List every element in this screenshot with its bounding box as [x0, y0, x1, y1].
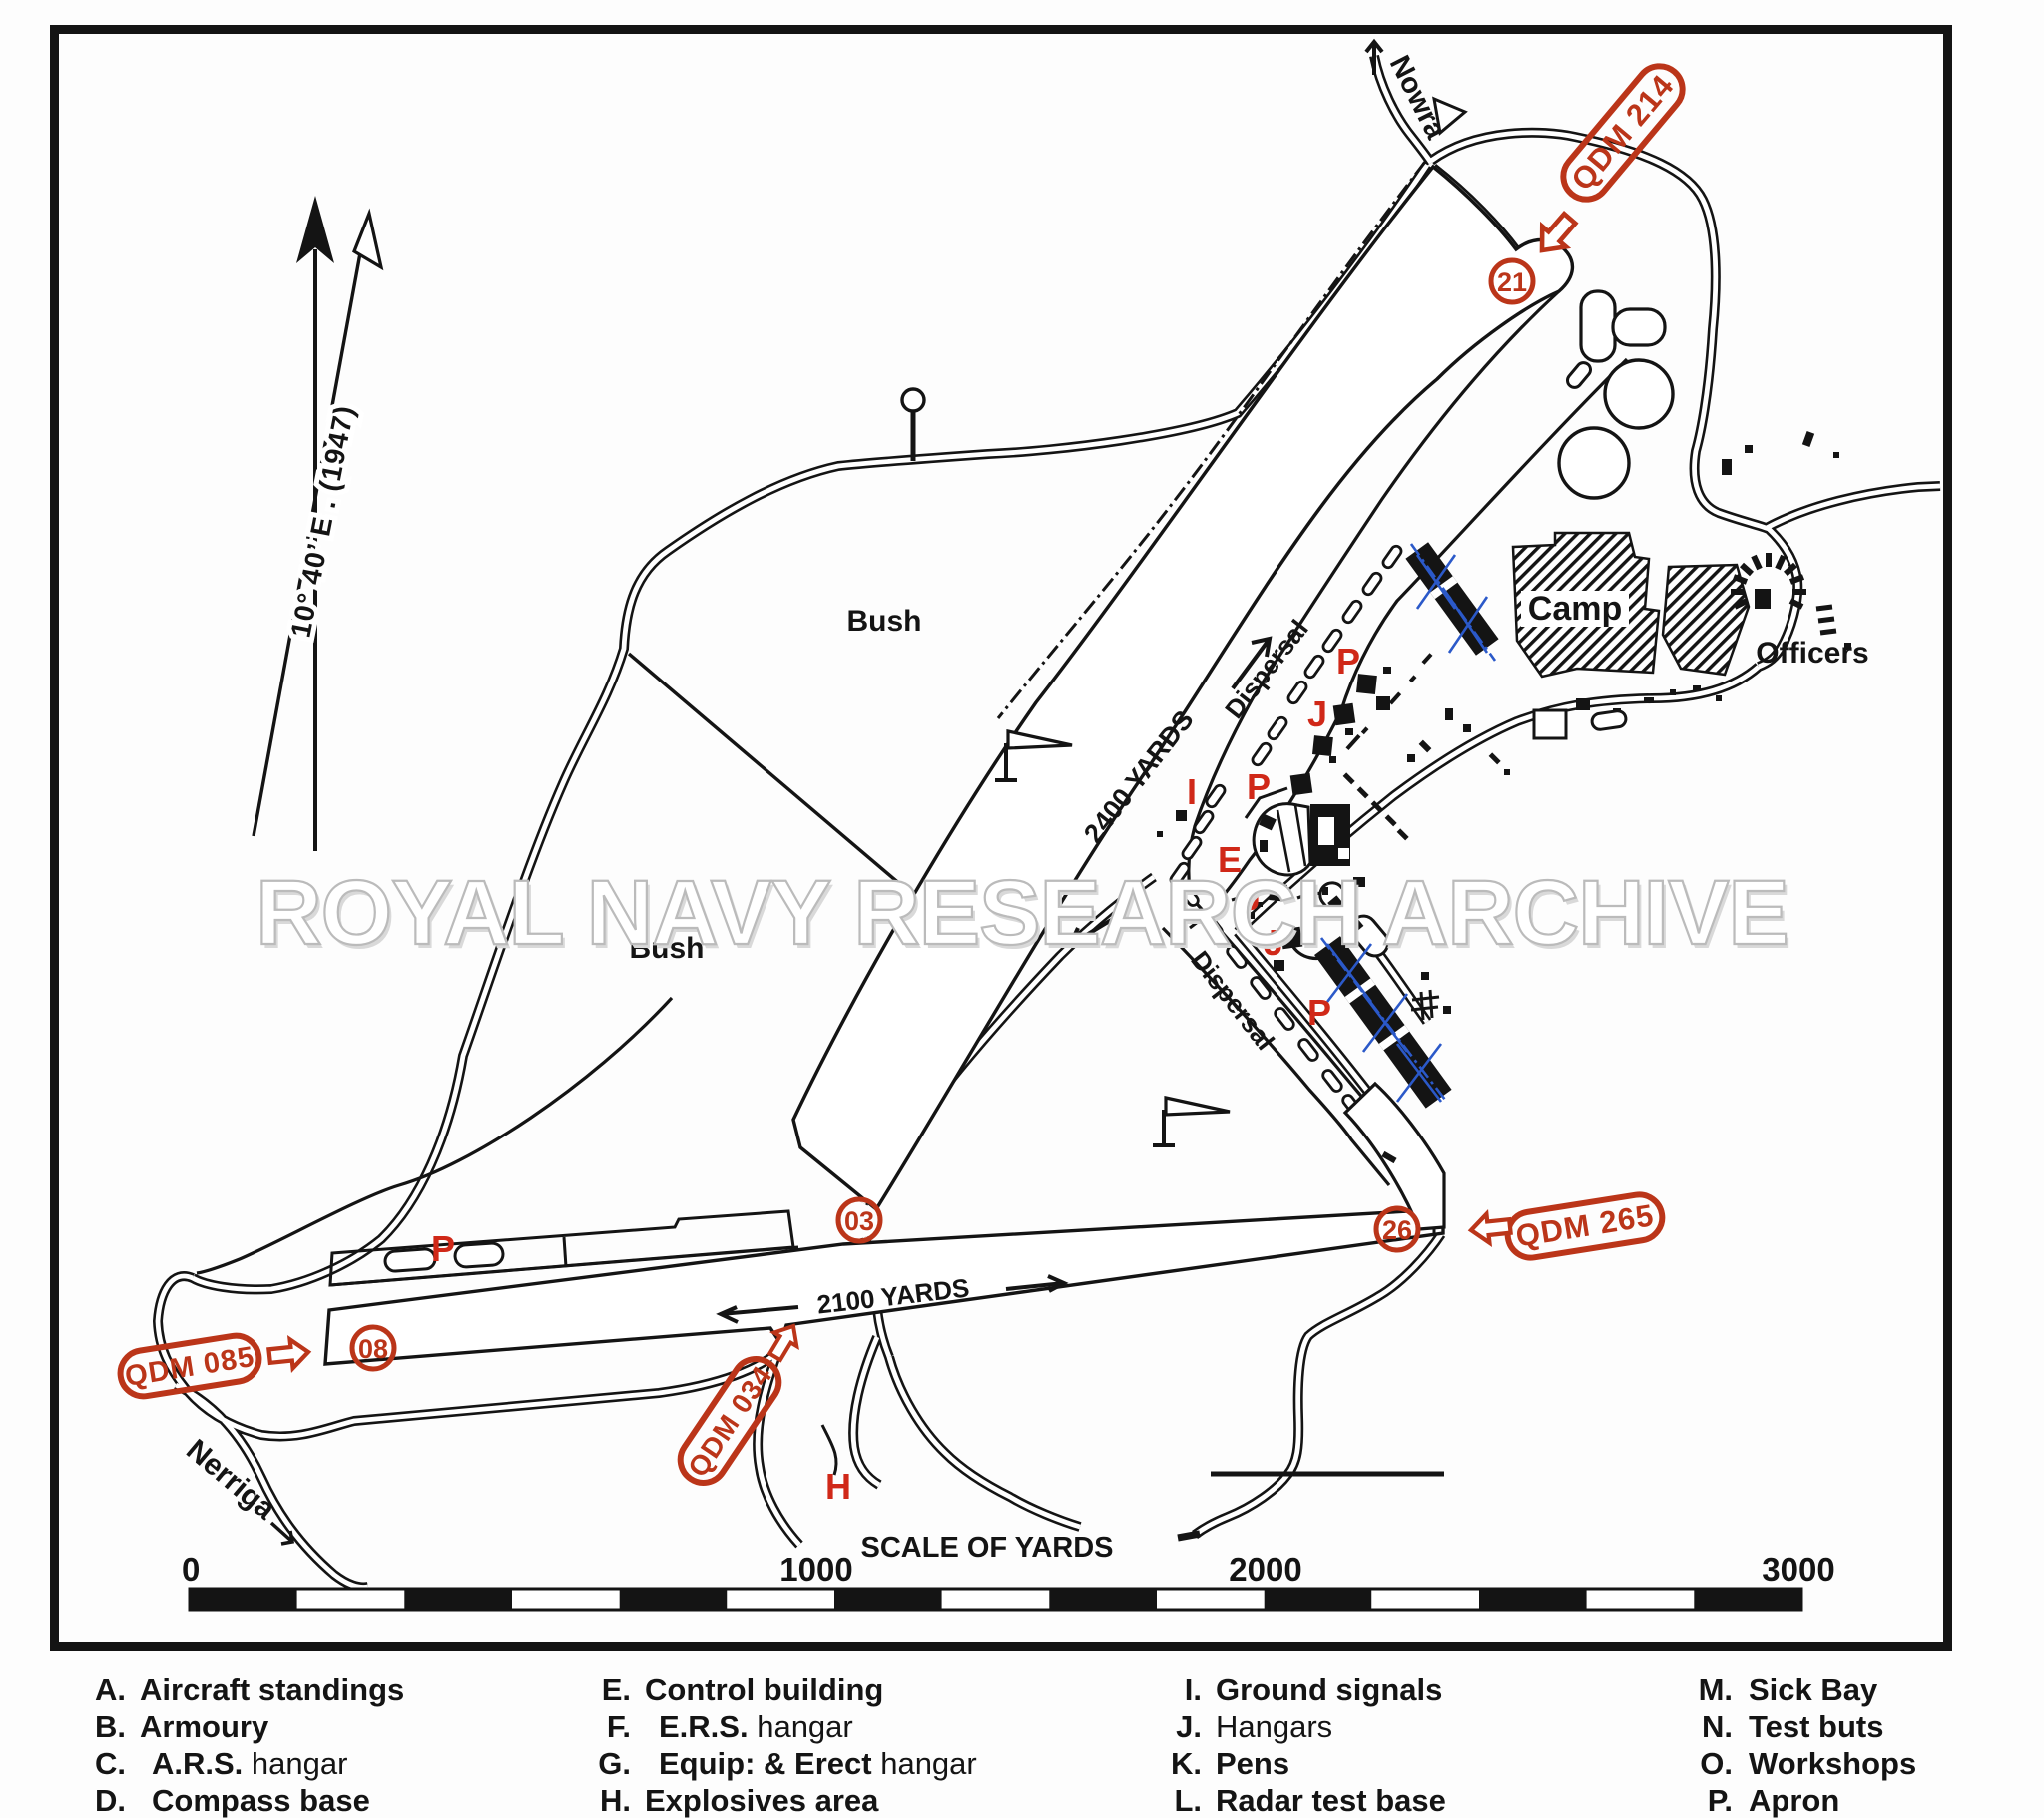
svg-text:3000: 3000 [1762, 1551, 1834, 1588]
svg-text:03: 03 [844, 1206, 874, 1236]
svg-text:A.: A. [95, 1672, 126, 1707]
svg-text:H.: H. [600, 1783, 631, 1818]
svg-text:I.: I. [1185, 1672, 1202, 1707]
svg-text:N.: N. [1702, 1709, 1733, 1744]
svg-text:Test buts: Test buts [1749, 1709, 1884, 1744]
svg-text:Camp: Camp [1528, 590, 1622, 628]
svg-text:Workshops: Workshops [1749, 1746, 1916, 1781]
svg-text:26: 26 [1382, 1215, 1412, 1245]
svg-text:E.: E. [602, 1672, 631, 1707]
svg-text:O.: O. [1700, 1746, 1733, 1781]
svg-text:Aircraft standings: Aircraft standings [140, 1672, 404, 1707]
svg-text:2000: 2000 [1229, 1551, 1301, 1588]
svg-text:Explosives area: Explosives area [645, 1783, 879, 1818]
svg-text:Pens: Pens [1216, 1746, 1289, 1781]
svg-text:ROYAL NAVY RESEARCH ARCHIVE: ROYAL NAVY RESEARCH ARCHIVE [255, 862, 1788, 964]
svg-text:C.: C. [95, 1746, 126, 1781]
svg-text:SCALE OF YARDS: SCALE OF YARDS [861, 1532, 1114, 1564]
svg-text:Equip: & Erect hangar: Equip: & Erect hangar [659, 1746, 977, 1781]
svg-text:Armoury: Armoury [140, 1709, 269, 1744]
svg-text:P: P [431, 1228, 455, 1269]
svg-text:1000: 1000 [779, 1551, 852, 1588]
svg-text:P.: P. [1708, 1783, 1733, 1818]
svg-text:Ground signals: Ground signals [1216, 1672, 1442, 1707]
svg-text:G.: G. [598, 1746, 631, 1781]
svg-text:D.: D. [95, 1783, 126, 1818]
svg-text:J.: J. [1176, 1709, 1202, 1744]
svg-text:J: J [1307, 693, 1327, 734]
svg-text:P: P [1247, 766, 1271, 807]
svg-text:Compass base: Compass base [152, 1783, 370, 1818]
svg-text:H: H [825, 1466, 851, 1507]
svg-text:08: 08 [358, 1334, 388, 1364]
svg-text:0: 0 [182, 1551, 200, 1588]
svg-text:I: I [1187, 771, 1197, 812]
svg-text:F.: F. [607, 1709, 631, 1744]
svg-text:Hangars: Hangars [1216, 1709, 1332, 1744]
svg-text:Control building: Control building [645, 1672, 883, 1707]
svg-text:P: P [1307, 992, 1331, 1033]
svg-text:Officers: Officers [1756, 637, 1868, 670]
svg-text:A.R.S. hangar: A.R.S. hangar [152, 1746, 347, 1781]
svg-text:Radar test base: Radar test base [1216, 1783, 1446, 1818]
svg-text:K.: K. [1171, 1746, 1202, 1781]
svg-text:B.: B. [95, 1709, 126, 1744]
svg-text:E.R.S. hangar: E.R.S. hangar [659, 1709, 853, 1744]
svg-text:Bush: Bush [847, 605, 922, 638]
svg-text:P: P [1336, 641, 1360, 682]
svg-text:Apron: Apron [1749, 1783, 1839, 1818]
svg-text:L.: L. [1174, 1783, 1202, 1818]
svg-text:Sick Bay: Sick Bay [1749, 1672, 1878, 1707]
svg-text:M.: M. [1699, 1672, 1733, 1707]
svg-text:21: 21 [1497, 267, 1527, 297]
